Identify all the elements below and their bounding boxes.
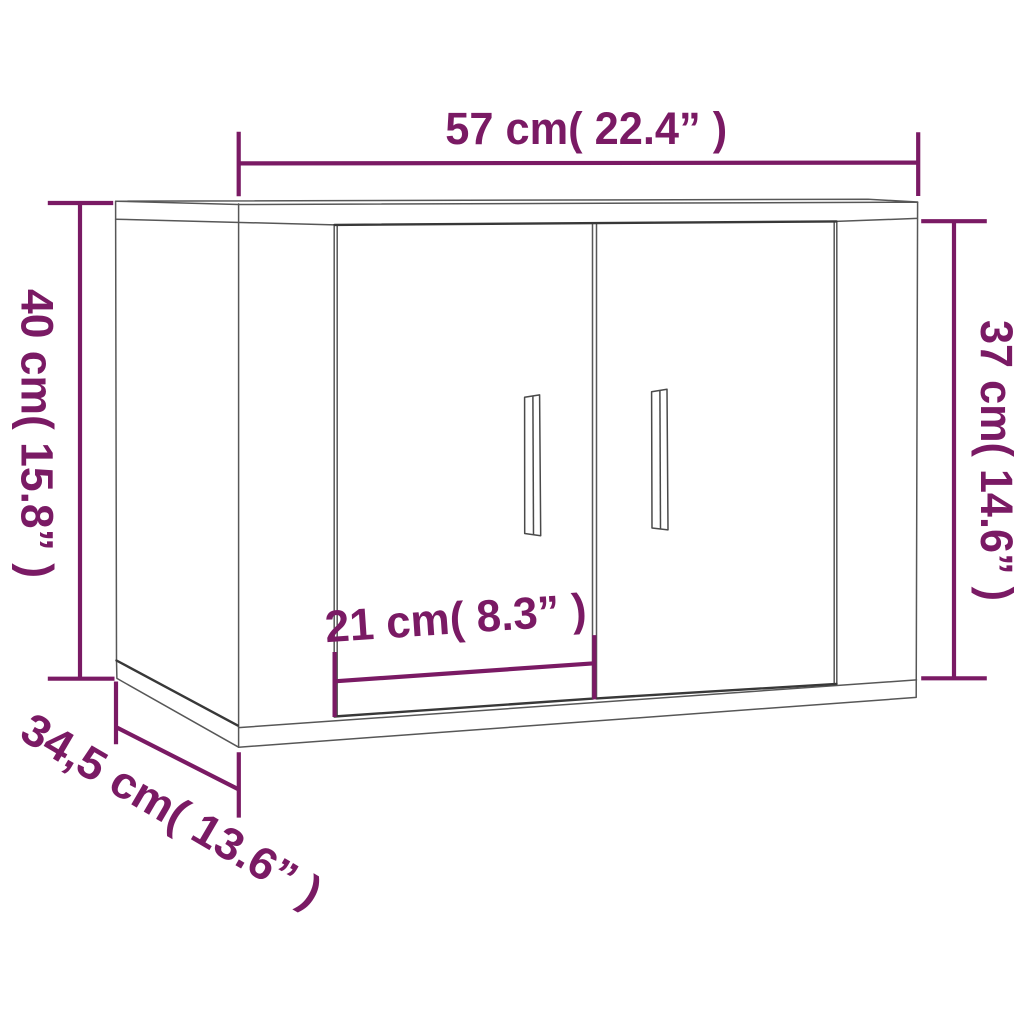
svg-text:34,5 cm( 13.6” ): 34,5 cm( 13.6” ) bbox=[13, 703, 331, 918]
svg-text:21 cm( 8.3” ): 21 cm( 8.3” ) bbox=[323, 584, 588, 653]
svg-text:57 cm( 22.4” ): 57 cm( 22.4” ) bbox=[445, 103, 727, 154]
svg-text:40 cm( 15.8” ): 40 cm( 15.8” ) bbox=[12, 289, 63, 578]
svg-text:37 cm( 14.6” ): 37 cm( 14.6” ) bbox=[971, 320, 1022, 601]
